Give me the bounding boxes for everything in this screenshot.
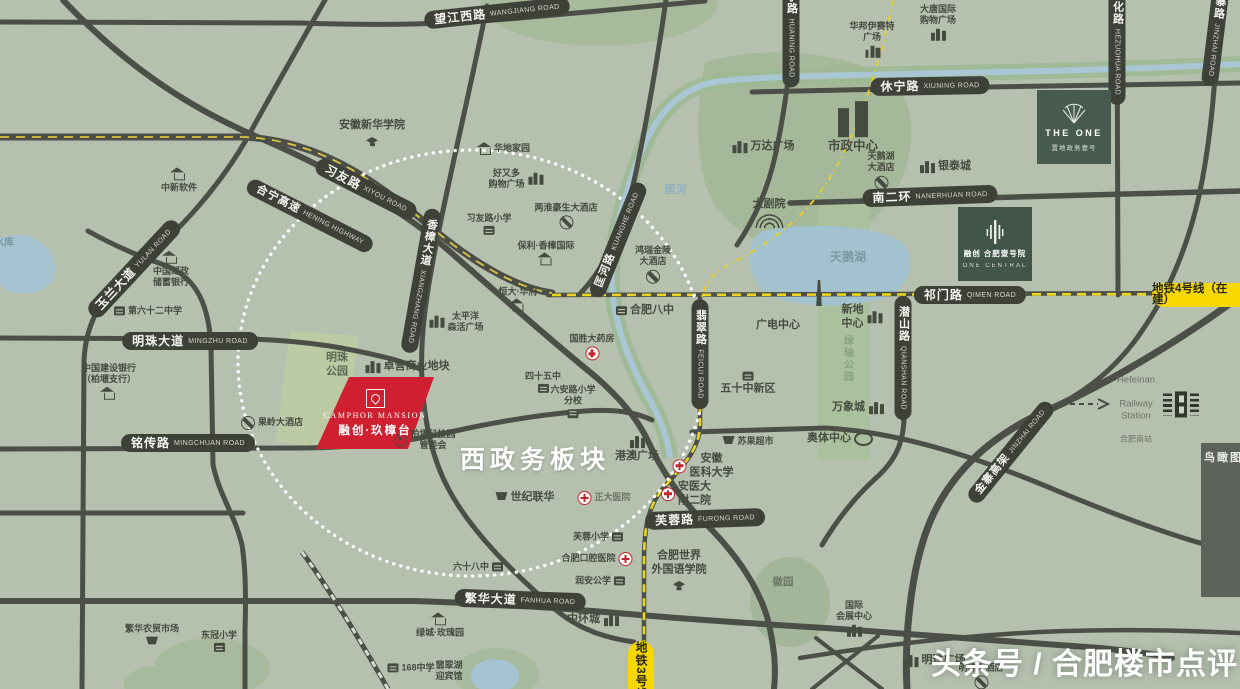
the-one-card: THE ONE 置地政务壹号 [1037, 90, 1111, 164]
mall-icon [909, 655, 913, 667]
school-icon [612, 533, 623, 542]
poi-civic-center: 市政中心 [828, 101, 878, 155]
metro-line3-badge: 地铁3号线 [628, 641, 654, 689]
railway-path [302, 552, 388, 689]
camphor-name: 融创·玖樟台 [338, 422, 411, 438]
one-central-card: 融创 合肥壹号院 ONE CENTRAL [958, 207, 1032, 281]
stadium-icon [854, 432, 873, 446]
poi-lvcheng-rose-garden: 绿城·玫瑰园 [416, 613, 464, 638]
poi-dental-hospital: 合肥口腔医院 [561, 552, 632, 566]
poi-wanxiang-city: 万象城 [832, 401, 884, 415]
home-icon [541, 259, 552, 266]
home-icon [480, 148, 491, 155]
poi-hefeinan-station: Hefeinan Railway Station 合肥南站 [1117, 362, 1199, 445]
the-one-subtitle: 置地政务壹号 [1052, 142, 1097, 152]
poi-furong-primary: 芙蓉小学 [573, 531, 623, 542]
poi-school168: 168中学 [387, 662, 434, 673]
school-icon [616, 307, 627, 316]
inset-backdrop [1201, 443, 1240, 597]
region-label: 西政务板块 [460, 440, 610, 476]
poi-pacific-mall: 太平洋 森活广场 [428, 311, 483, 334]
poi-huabang-plaza: 华邦伊赛特 广场 [849, 21, 894, 58]
poi-hengda: 恒大·华府 [499, 286, 538, 311]
poi-runan-school: 润安公学 [575, 575, 625, 586]
camphor-brand: CAMPHOR MANSION [324, 411, 427, 420]
mall-icon [874, 402, 878, 414]
home-icon [435, 618, 446, 625]
red-cross-icon [577, 491, 591, 505]
graduation-cap-icon [366, 135, 378, 147]
cart-icon [722, 436, 734, 444]
home-icon [103, 392, 114, 399]
inset-label: 鸟瞰图 [1204, 449, 1240, 465]
poi-baoli: 保利·香樟国际 [518, 240, 575, 265]
mall-icon [434, 316, 438, 328]
poi-guoling-hotel: 果岭大酒店 [241, 416, 303, 430]
watermark: 头条号 / 合肥楼市点评 [931, 639, 1238, 683]
poi-no50-school: 五十中新区 [721, 372, 776, 397]
poi-zhengda-hospital: 正大医院 [577, 491, 630, 505]
hotel-icon [241, 416, 255, 430]
poi-huadi: 华地家园 [480, 143, 530, 155]
poi-feicui-guesthouse: 翡翠湖 迎宾馆 [435, 660, 462, 683]
school-icon [537, 384, 548, 393]
graduation-cap-icon [673, 579, 685, 591]
camphor-logo-icon [366, 389, 385, 408]
poi-suguo-market: 苏果超市 [722, 436, 773, 448]
poi-century-lianhua: 世纪联华 [496, 491, 555, 505]
towers-icon [982, 220, 1008, 244]
poi-anhui-medical-univ: 安徽 医科大学 [673, 452, 734, 480]
railway-station-icon [1163, 391, 1199, 417]
red-cross-icon [585, 347, 599, 361]
poi-guosheng-pharmacy: 国胜大药房 [569, 333, 614, 360]
red-cross-icon [673, 459, 687, 473]
road-label-hezuohua: 合作化路HEZUOHUA ROAD [1109, 0, 1126, 105]
road-label-mingchuan: 铭传路MINGCHUAN ROAD [121, 434, 255, 452]
poi-school68: 六十八中 [453, 561, 503, 572]
poi-gangao-plaza: 港澳广场 [615, 436, 659, 464]
poi-luan-primary-branch: 六安路小学 分校 [550, 384, 595, 418]
poi-zhuoying-plot: 卓营商业地块 [365, 360, 450, 374]
school-icon [492, 563, 503, 572]
mingzhu-park-label: 明珠 公园 [326, 351, 348, 380]
river-kuanghe-label: 匡河 [665, 183, 687, 197]
home-icon [513, 305, 524, 312]
mall-icon [873, 311, 877, 323]
mall-icon [609, 614, 613, 626]
poi-olympic-center: 奥体中心 [807, 432, 873, 446]
hui-garden-label: 徽园 [773, 576, 794, 590]
poi-hongrui-hotel: 鸿瑞金陵 大酒店 [635, 245, 671, 284]
road-label-qimen: 祁门路QIMEN ROAD [914, 286, 1026, 304]
poi-anyida-hospital2: 安医大 附二院 [661, 480, 711, 508]
mall-icon [534, 173, 538, 185]
road-qimen-path [548, 293, 1240, 295]
mall-icon [925, 161, 929, 173]
mall-icon [852, 624, 856, 636]
fan-icon [1061, 102, 1087, 124]
poi-swan-lake-hotel: 天鹅湖 大酒店 [867, 151, 894, 190]
poi-ccb-bank: 中国建设银行 （柏堰支行） [82, 363, 136, 400]
arrow-right-icon [1068, 398, 1110, 410]
poi-zhonghuan-city: 中环城 [567, 613, 619, 627]
poi-datang-mall: 大唐国际 购物广场 [920, 4, 956, 41]
the-one-title: THE ONE [1045, 128, 1103, 138]
school-icon [743, 372, 754, 381]
hotel-icon [646, 269, 660, 283]
poi-fanhua-market: 繁华农贸市场 [125, 623, 179, 648]
one-central-title: 融创 合肥壹号院 [964, 248, 1027, 259]
swan-lake-label: 天鹅湖 [830, 250, 866, 266]
one-central-subtitle: ONE CENTRAL [963, 263, 1028, 269]
poi-xiyou-primary: 习友路小学 [466, 213, 511, 235]
school-icon [483, 226, 494, 235]
mall-icon [936, 28, 940, 40]
poi-zhongxin: 中新软件 [161, 168, 197, 193]
road-label-mingzhu: 明珠大道MINGZHU ROAD [122, 332, 258, 350]
poi-wanda-plaza: 万达广场 [732, 140, 795, 154]
poi-xindi-center: 新地 中心 [842, 303, 883, 331]
mall-icon [738, 141, 742, 153]
cart-icon [496, 492, 508, 500]
school-icon [387, 664, 398, 673]
poi-foreign-language-school: 合肥世界 外国语学院 [652, 549, 707, 591]
reservoir-label: 水库 [0, 237, 14, 250]
theater-icon [755, 214, 783, 228]
poi-hefei-no8-school: 合肥八中 [616, 304, 674, 318]
poi-yintai-city: 银泰城 [919, 160, 971, 174]
poi-xinhua-college: 安徽新华学院 [339, 119, 405, 147]
map-canvas[interactable]: 望江西路WANGJIANG ROAD 习友路XIYOU ROAD 合宁高速HEN… [0, 0, 1240, 689]
poi-grand-theater: 大剧院 [753, 198, 786, 228]
home-icon [173, 173, 184, 180]
road-aoti-east-path [692, 428, 1240, 553]
hotel-icon [874, 175, 888, 189]
road-label-feicui: 翡翠路FEICUI ROAD [692, 299, 709, 409]
road-label-huaining: 怀宁路HUANING ROAD [783, 0, 800, 88]
camphor-mansion-card: CAMPHOR MANSION 融创·玖樟台 [316, 377, 434, 449]
poi-dongguan-primary: 东冠小学 [201, 630, 237, 652]
red-cross-icon [661, 487, 675, 501]
mall-icon [371, 361, 375, 373]
school-icon [114, 307, 125, 316]
school-icon [567, 409, 578, 418]
poi-haosheng-hotel: 两淮豪生大酒店 [534, 202, 597, 229]
red-cross-icon [619, 552, 633, 566]
poi-guangdian-center: 广电中心 [756, 319, 800, 333]
mall-icon [870, 45, 874, 57]
civic-building-icon [838, 101, 868, 137]
metro-line4-badge: 地铁4号线（在建） [1152, 283, 1240, 307]
school-icon [614, 577, 625, 586]
poi-haoyouduo: 好又多 购物广场 [488, 168, 543, 191]
hotel-icon [559, 216, 573, 230]
home-icon [165, 257, 176, 264]
cart-icon [146, 637, 158, 645]
poi-school62: 第六十二中学 [114, 305, 182, 316]
poi-exhibition-center: 国际 会展中心 [836, 600, 872, 637]
school-icon [213, 643, 224, 652]
mall-icon [635, 436, 639, 448]
green-axis-park-label: 绿轴公园 [841, 335, 854, 383]
road-label-qianshan: 潜山路QIANSHAN ROAD [895, 296, 912, 420]
poi-postal-bank: 中国邮政 储蓄银行 [153, 252, 189, 289]
road-label-xiuning: 休宁路XIUNING ROAD [870, 76, 989, 96]
